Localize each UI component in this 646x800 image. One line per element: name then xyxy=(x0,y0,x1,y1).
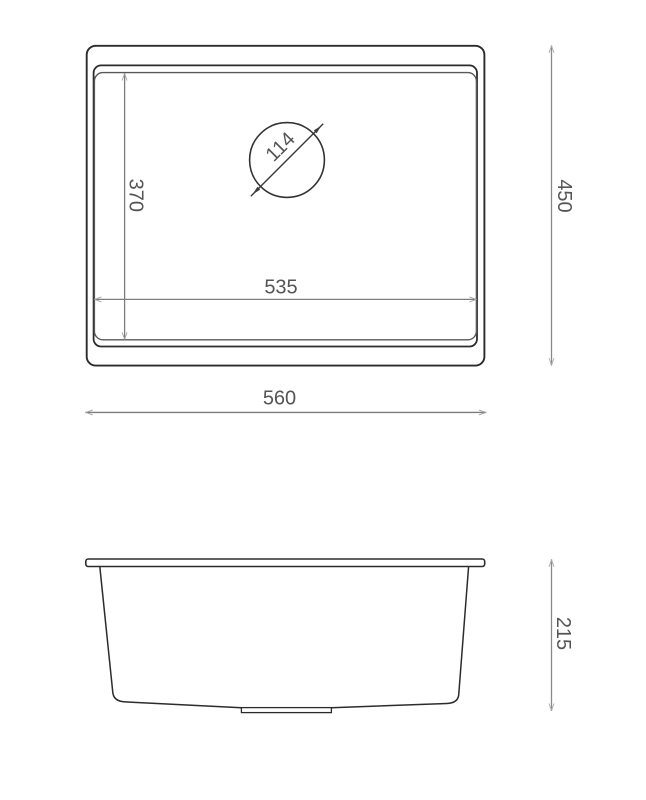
svg-text:450: 450 xyxy=(553,179,575,212)
svg-text:560: 560 xyxy=(263,388,296,410)
svg-text:370: 370 xyxy=(124,179,146,212)
svg-text:215: 215 xyxy=(552,617,574,650)
svg-text:535: 535 xyxy=(264,277,297,299)
